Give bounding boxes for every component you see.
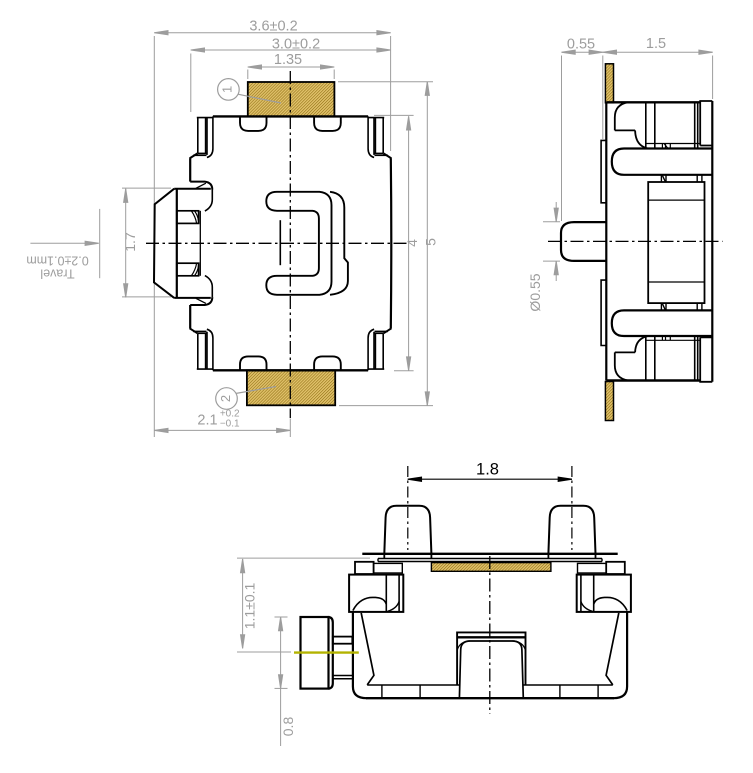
svg-text:1.35: 1.35 xyxy=(274,52,302,68)
svg-text:Travel: Travel xyxy=(40,267,74,281)
svg-text:5: 5 xyxy=(423,238,439,246)
svg-text:3.0±0.2: 3.0±0.2 xyxy=(272,37,320,53)
svg-text:3.6±0.2: 3.6±0.2 xyxy=(249,19,297,35)
svg-text:1.8: 1.8 xyxy=(476,461,499,479)
svg-text:0.2±0.1mm: 0.2±0.1mm xyxy=(26,254,88,268)
svg-text:1.1±0.1: 1.1±0.1 xyxy=(242,582,258,629)
svg-text:1.7: 1.7 xyxy=(122,232,138,252)
svg-text:2: 2 xyxy=(218,395,233,402)
svg-text:2.1: 2.1 xyxy=(197,413,217,429)
svg-text:1.5: 1.5 xyxy=(646,36,666,52)
svg-text:0.8: 0.8 xyxy=(280,717,296,737)
svg-text:Ø0.55: Ø0.55 xyxy=(527,273,543,311)
svg-text:0.55: 0.55 xyxy=(567,37,595,53)
svg-text:1: 1 xyxy=(220,86,235,93)
svg-text:−0.1: −0.1 xyxy=(220,419,240,430)
svg-text:4: 4 xyxy=(404,239,420,247)
